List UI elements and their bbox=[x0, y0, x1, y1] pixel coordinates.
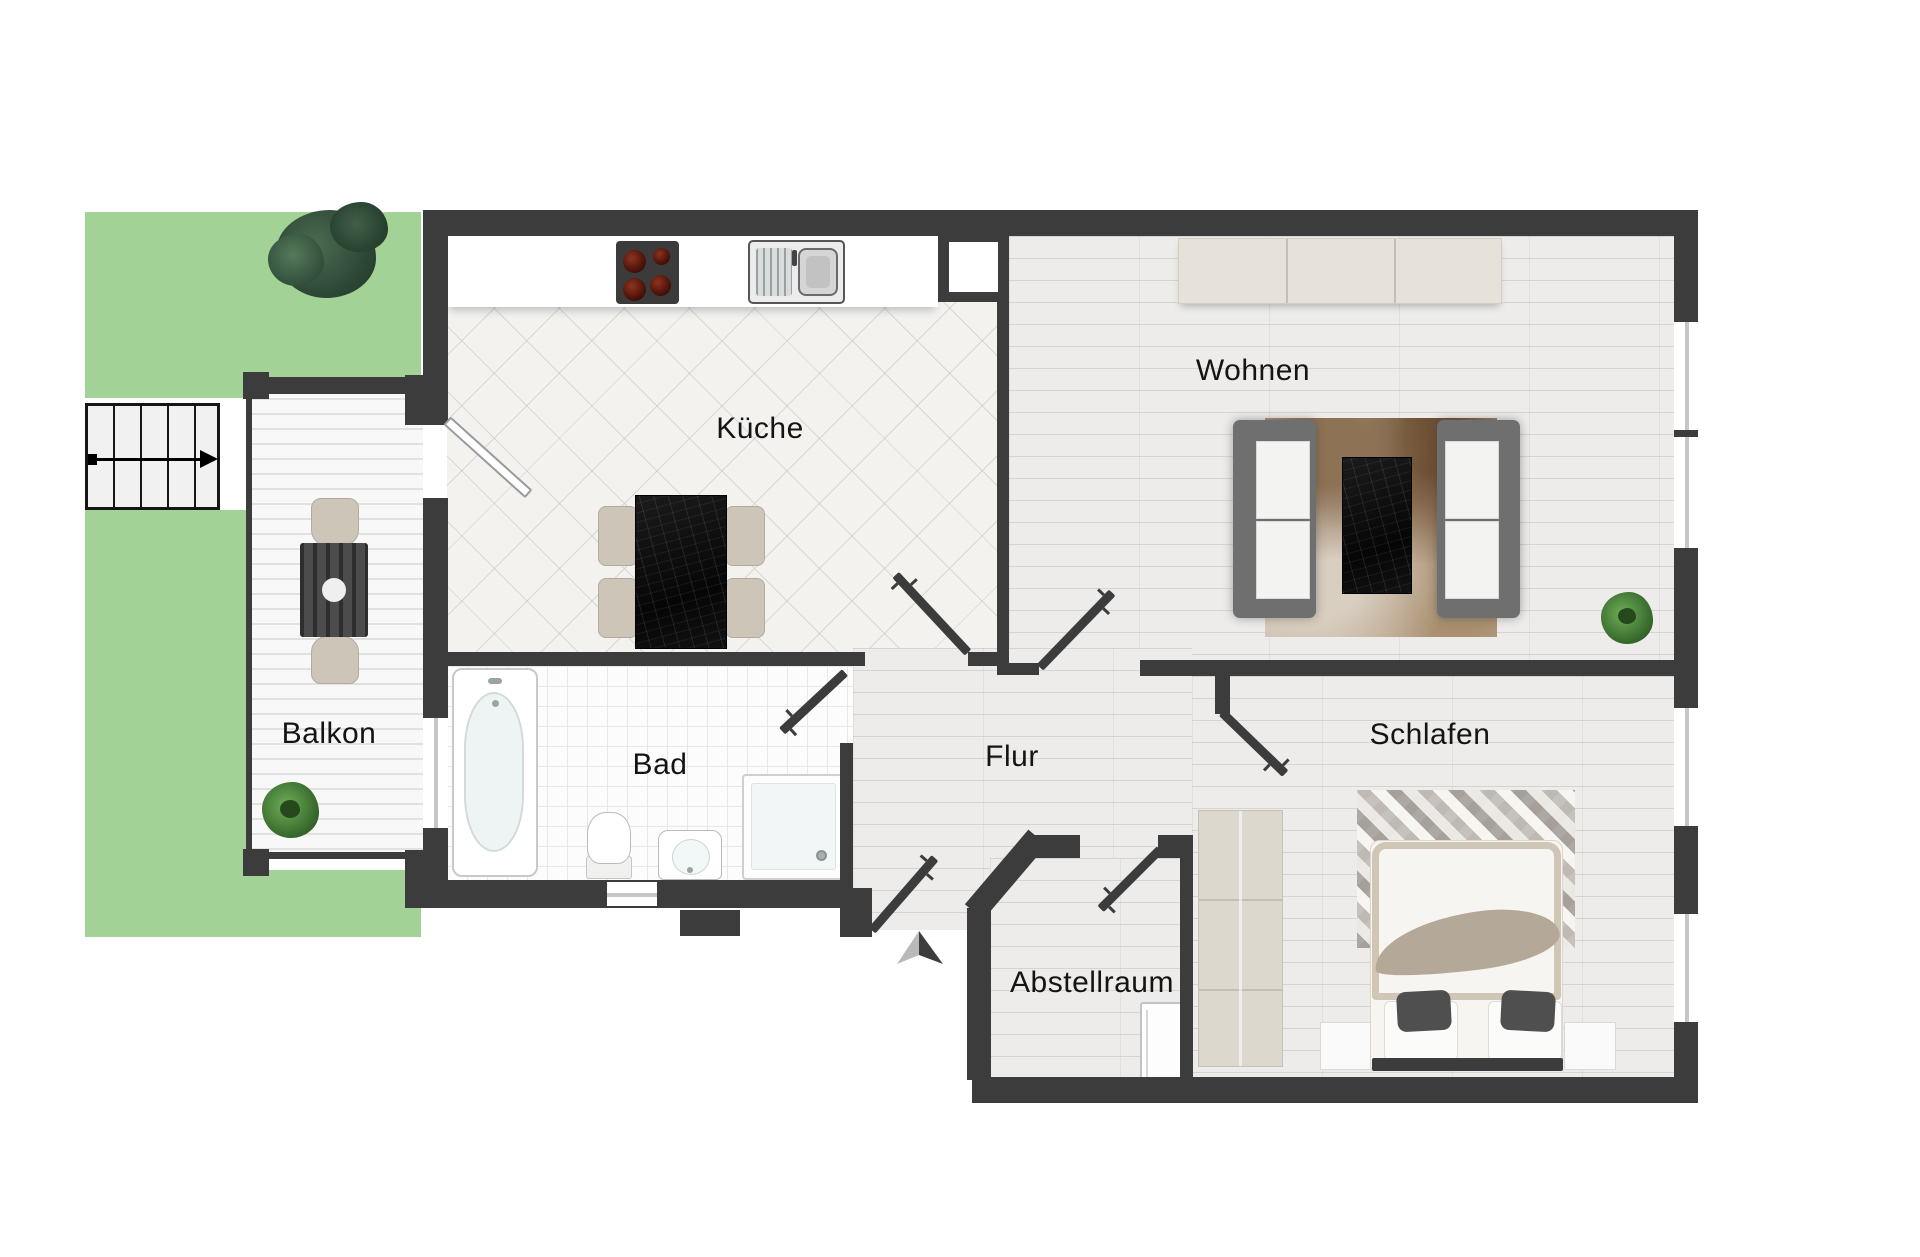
sideboard bbox=[1178, 238, 1502, 304]
chair bbox=[725, 578, 765, 638]
balcony-wall bbox=[405, 850, 448, 908]
balcony-wall bbox=[405, 375, 448, 425]
drain-icon bbox=[816, 850, 827, 861]
window-mullion bbox=[1674, 430, 1698, 437]
chair bbox=[598, 578, 638, 638]
sofa bbox=[1437, 420, 1520, 618]
wall bbox=[972, 1077, 1698, 1103]
balcony-wall bbox=[246, 852, 426, 859]
room-label-kitchen: Küche bbox=[716, 412, 804, 446]
balcony-wall bbox=[246, 377, 408, 394]
garden-area bbox=[247, 870, 421, 937]
room-label-living: Wohnen bbox=[1196, 354, 1310, 388]
wall bbox=[680, 910, 740, 936]
bath-window bbox=[423, 718, 448, 828]
stairs bbox=[85, 403, 220, 510]
wall bbox=[967, 908, 991, 1080]
wardrobe bbox=[1198, 810, 1283, 1067]
wall bbox=[968, 652, 1009, 666]
shaft-opening bbox=[949, 242, 998, 292]
stove bbox=[616, 241, 679, 304]
wall bbox=[840, 888, 872, 937]
pillow-dark bbox=[1500, 990, 1556, 1033]
wall bbox=[1674, 826, 1698, 914]
balcony-table bbox=[300, 543, 368, 637]
entrance-direction-arrow bbox=[891, 928, 949, 972]
balcony-wall bbox=[246, 378, 252, 874]
bidet bbox=[658, 830, 722, 880]
wall bbox=[1140, 660, 1674, 676]
wall bbox=[1034, 835, 1080, 858]
shower bbox=[742, 774, 844, 880]
living-window bbox=[1676, 322, 1696, 430]
garden-area bbox=[85, 212, 247, 398]
bedroom-window bbox=[1676, 708, 1696, 826]
nightstand bbox=[1564, 1022, 1616, 1070]
wall bbox=[423, 498, 448, 720]
wall bbox=[447, 652, 865, 666]
wall bbox=[1674, 548, 1698, 708]
floor-plan: Küche Wohnen Balkon Bad Flur Schlafen Ab… bbox=[0, 0, 1920, 1257]
chair bbox=[598, 506, 638, 566]
bed-footboard bbox=[1372, 1058, 1563, 1071]
room-label-bedroom: Schlafen bbox=[1370, 718, 1491, 752]
wall bbox=[1180, 835, 1193, 1078]
room-label-hall: Flur bbox=[985, 740, 1039, 774]
balcony-wall bbox=[243, 849, 269, 876]
faucet-icon bbox=[488, 678, 502, 684]
bath-window bbox=[607, 882, 657, 906]
chair bbox=[725, 506, 765, 566]
balcony-plant-icon bbox=[262, 782, 319, 838]
toilet bbox=[584, 812, 634, 878]
living-plant-icon bbox=[1601, 592, 1653, 644]
balcony-chair bbox=[311, 636, 359, 684]
bed bbox=[1370, 840, 1563, 1070]
room-label-balcony: Balkon bbox=[282, 717, 377, 751]
dining-table bbox=[635, 495, 727, 649]
wall bbox=[840, 743, 853, 890]
faucet-icon bbox=[792, 250, 797, 266]
bathtub bbox=[452, 668, 538, 877]
kitchen-counter bbox=[447, 236, 938, 307]
room-label-storage: Abstellraum bbox=[1010, 966, 1174, 1000]
wall bbox=[423, 210, 1698, 236]
room-label-bath: Bad bbox=[633, 748, 688, 782]
sofa bbox=[1233, 420, 1316, 618]
wall bbox=[1215, 676, 1230, 714]
nightstand bbox=[1320, 1022, 1372, 1070]
tree-icon bbox=[268, 200, 390, 308]
living-window bbox=[1676, 437, 1696, 548]
pillow-dark bbox=[1396, 990, 1452, 1033]
bedroom-window bbox=[1676, 914, 1696, 1022]
kitchen-sink bbox=[748, 240, 845, 304]
balcony-wall bbox=[243, 372, 269, 399]
wall bbox=[1674, 210, 1698, 322]
balcony-chair bbox=[311, 498, 359, 546]
garden-area bbox=[85, 510, 247, 937]
coffee-table bbox=[1342, 457, 1412, 594]
